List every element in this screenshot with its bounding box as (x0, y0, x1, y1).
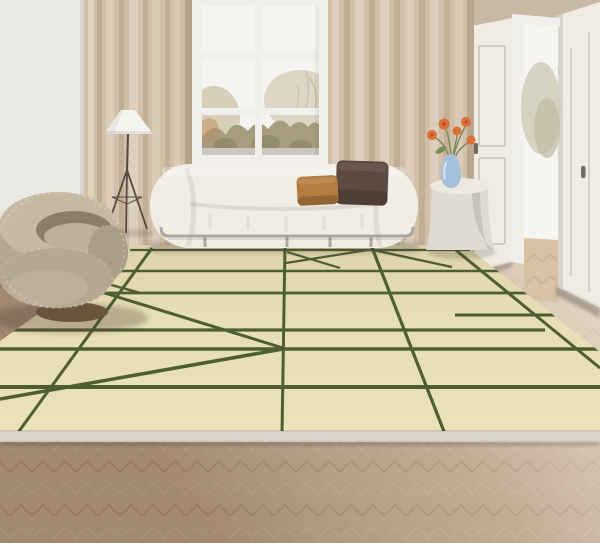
scene-canvas (0, 0, 600, 543)
pillow-brown (335, 160, 389, 206)
living-room-photo (0, 0, 600, 543)
sofa (150, 160, 418, 248)
table-body (426, 186, 494, 250)
door-handle-left (474, 143, 479, 154)
door-jamb (512, 16, 524, 264)
door-handle-right (581, 166, 586, 178)
window (186, 0, 336, 170)
pillow-caramel (296, 175, 338, 206)
rug-binding (0, 431, 600, 442)
